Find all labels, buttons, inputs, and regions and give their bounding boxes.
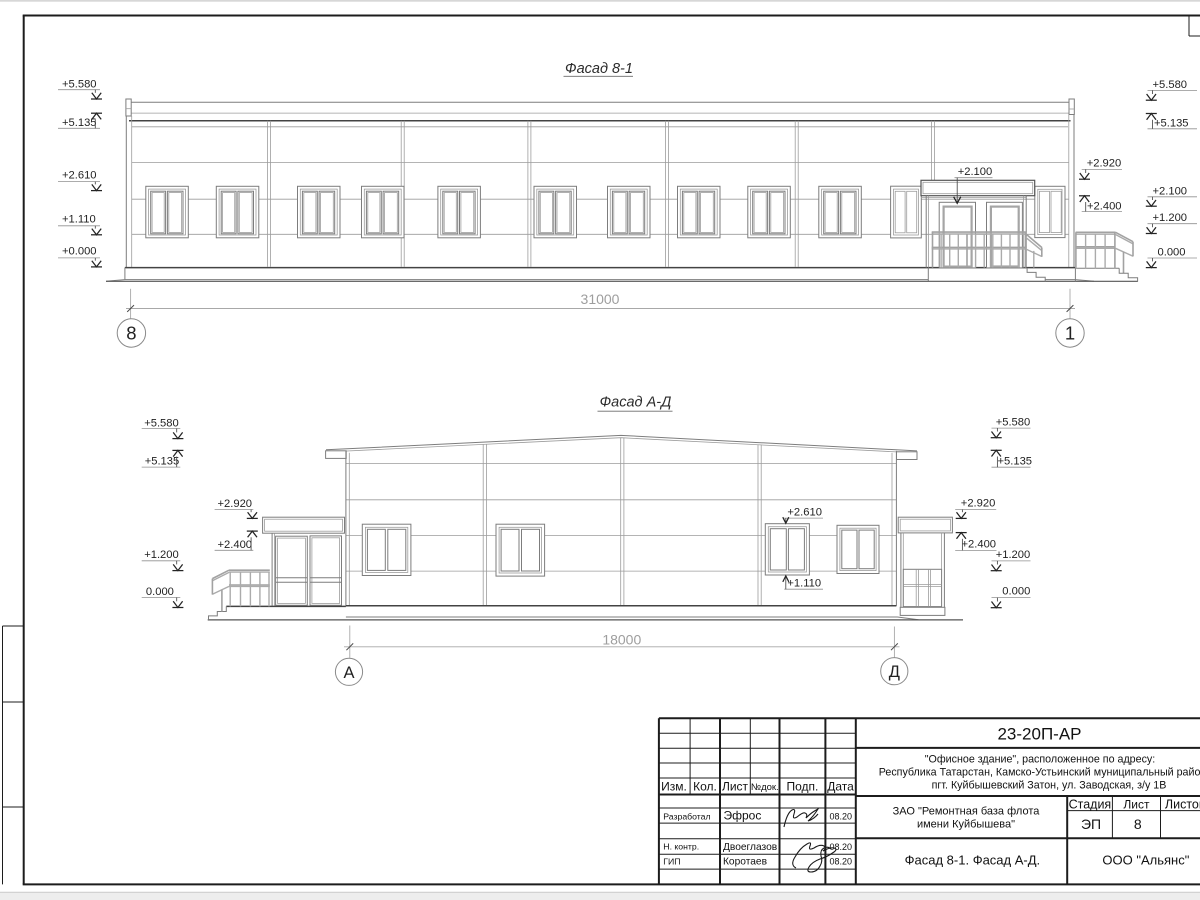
svg-text:"Офисное здание", расположенно: "Офисное здание", расположенное по адрес…: [925, 753, 1155, 765]
svg-text:+1.200: +1.200: [144, 549, 179, 561]
svg-text:+5.580: +5.580: [62, 78, 97, 90]
svg-text:+2.400: +2.400: [962, 539, 997, 551]
svg-text:Стадия: Стадия: [1069, 797, 1112, 811]
svg-text:А: А: [343, 664, 354, 682]
svg-text:Республика Татарстан, Камско-У: Республика Татарстан, Камско-Устьинский …: [879, 766, 1200, 778]
svg-text:Кол.: Кол.: [693, 780, 717, 794]
svg-text:Листов: Листов: [1165, 797, 1200, 811]
svg-text:+2.610: +2.610: [787, 506, 822, 518]
svg-text:8: 8: [126, 323, 136, 344]
svg-text:Коротаев: Коротаев: [723, 856, 767, 867]
svg-text:1: 1: [1065, 323, 1075, 344]
svg-text:+5.580: +5.580: [996, 416, 1031, 428]
svg-text:+1.200: +1.200: [1153, 212, 1188, 224]
svg-text:+5.135: +5.135: [1154, 117, 1189, 129]
svg-text:Н. контр.: Н. контр.: [663, 842, 699, 852]
svg-text:+2.920: +2.920: [1087, 158, 1122, 170]
svg-text:Подп.: Подп.: [786, 780, 818, 794]
svg-text:0.000: 0.000: [146, 586, 174, 598]
svg-text:+1.110: +1.110: [787, 577, 821, 589]
svg-text:ГИП: ГИП: [663, 857, 680, 867]
svg-text:0.000: 0.000: [1158, 247, 1186, 259]
svg-text:Фасад 8-1. Фасад А-Д.: Фасад 8-1. Фасад А-Д.: [905, 853, 1041, 868]
svg-text:18000: 18000: [602, 632, 641, 648]
svg-text:+5.135: +5.135: [145, 456, 180, 468]
svg-text:ООО "Альянс": ООО "Альянс": [1102, 853, 1189, 868]
svg-text:8: 8: [1134, 816, 1142, 832]
svg-text:+5.135: +5.135: [998, 456, 1033, 468]
svg-text:31000: 31000: [581, 291, 620, 307]
svg-text:+5.135: +5.135: [62, 117, 97, 129]
svg-text:Двоеглазов: Двоеглазов: [723, 842, 777, 853]
svg-text:+2.610: +2.610: [62, 169, 97, 181]
svg-text:имени Куйбышева": имени Куйбышева": [917, 818, 1015, 830]
svg-text:Разработал: Разработал: [663, 812, 710, 822]
svg-text:08.20: 08.20: [830, 842, 853, 852]
svg-text:№док.: №док.: [751, 782, 779, 793]
svg-text:Лист: Лист: [722, 780, 749, 794]
svg-text:+2.100: +2.100: [1153, 185, 1188, 197]
svg-text:+1.110: +1.110: [62, 213, 96, 225]
svg-text:08.20: 08.20: [830, 856, 853, 866]
svg-text:+2.920: +2.920: [218, 498, 253, 510]
svg-text:+2.920: +2.920: [961, 498, 996, 510]
svg-text:Фасад 8-1: Фасад 8-1: [565, 61, 633, 77]
svg-text:Фасад А-Д: Фасад А-Д: [600, 395, 672, 411]
svg-text:ЭП: ЭП: [1081, 816, 1101, 832]
svg-text:Дата: Дата: [827, 780, 854, 794]
svg-text:+5.580: +5.580: [1153, 79, 1188, 91]
svg-text:+2.100: +2.100: [958, 166, 993, 178]
svg-text:Изм.: Изм.: [661, 780, 687, 794]
svg-text:08.20: 08.20: [830, 812, 853, 822]
svg-text:23-20П-АР: 23-20П-АР: [997, 725, 1081, 744]
svg-text:+2.400: +2.400: [1087, 200, 1122, 212]
svg-text:пгт. Куйбышевский Затон, ул. З: пгт. Куйбышевский Затон, ул. Заводская, …: [932, 780, 1167, 792]
svg-text:+1.200: +1.200: [996, 549, 1031, 561]
svg-text:+2.400: +2.400: [218, 539, 253, 551]
svg-text:+0.000: +0.000: [62, 246, 97, 258]
svg-text:Лист: Лист: [1123, 797, 1150, 811]
svg-text:ЗАО "Ремонтная база флота: ЗАО "Ремонтная база флота: [893, 805, 1041, 817]
svg-text:Эфрос: Эфрос: [724, 808, 762, 822]
svg-text:Д: Д: [889, 663, 900, 681]
svg-text:+5.580: +5.580: [144, 417, 179, 429]
svg-text:0.000: 0.000: [1002, 586, 1030, 598]
